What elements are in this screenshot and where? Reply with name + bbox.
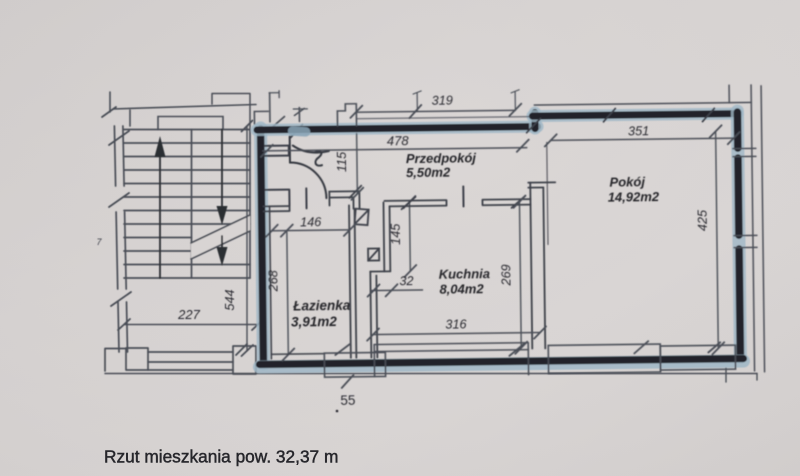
svg-text:Kuchnia: Kuchnia: [439, 266, 490, 282]
svg-text:227: 227: [177, 307, 200, 322]
svg-text:32: 32: [399, 274, 413, 288]
svg-text:319: 319: [432, 94, 453, 108]
svg-text:55: 55: [340, 393, 355, 408]
svg-text:425: 425: [696, 209, 710, 231]
svg-text:Łazienka: Łazienka: [292, 298, 351, 314]
svg-text:145: 145: [389, 223, 403, 245]
svg-text:146: 146: [300, 215, 322, 229]
svg-text:Rzut mieszkania pow. 32,37 m: Rzut mieszkania pow. 32,37 m: [104, 447, 338, 467]
svg-text:269: 269: [499, 264, 513, 286]
svg-text:351: 351: [628, 124, 649, 138]
svg-text:268: 268: [266, 270, 280, 292]
svg-text:8,04m2: 8,04m2: [439, 281, 484, 297]
svg-text:5,50m2: 5,50m2: [406, 165, 451, 181]
svg-text:115: 115: [335, 151, 349, 172]
svg-text:14,92m2: 14,92m2: [608, 189, 660, 205]
svg-text:316: 316: [445, 317, 467, 331]
svg-text:Pokój: Pokój: [609, 174, 645, 189]
svg-text:478: 478: [387, 133, 410, 148]
svg-text:3,91m2: 3,91m2: [291, 314, 337, 330]
svg-text:544: 544: [223, 289, 237, 310]
